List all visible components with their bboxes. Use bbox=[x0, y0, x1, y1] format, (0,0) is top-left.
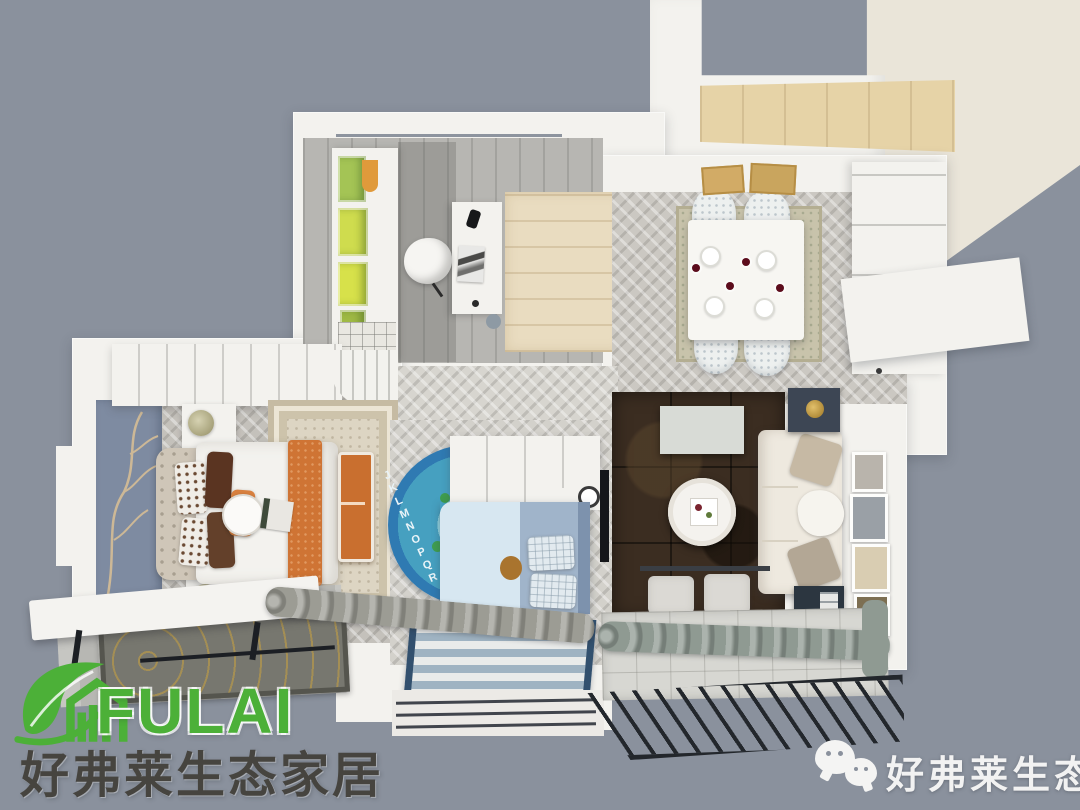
wine-glass bbox=[726, 282, 734, 290]
wechat-bubble-small bbox=[845, 758, 877, 786]
living-balcony-curtain-side bbox=[862, 600, 888, 678]
kids-headboard bbox=[578, 502, 590, 614]
wall-frame bbox=[852, 452, 886, 492]
bed-tray bbox=[222, 494, 264, 536]
study-window-mullion bbox=[336, 134, 562, 137]
desk-trinket bbox=[472, 300, 479, 307]
plaid-pillow bbox=[529, 573, 577, 609]
patterned-pillow bbox=[174, 461, 208, 515]
apartment-render: JKLMNOPQR bbox=[0, 0, 1080, 810]
plaid-pillow bbox=[527, 535, 575, 571]
tv-console bbox=[660, 406, 744, 454]
wine-glass bbox=[776, 284, 784, 292]
wine-glass bbox=[692, 264, 700, 272]
left-window-sill bbox=[56, 446, 74, 566]
tray-item bbox=[695, 504, 702, 511]
side-table-top bbox=[788, 388, 840, 432]
plate bbox=[704, 296, 725, 317]
wardrobe-glass-panel bbox=[338, 262, 368, 306]
teddy-bear bbox=[500, 556, 522, 580]
watermark-text: 好弗莱生态家居 bbox=[886, 744, 1080, 799]
desk-artwork bbox=[457, 245, 485, 282]
tray-item bbox=[706, 512, 712, 518]
cutting-board bbox=[701, 165, 745, 196]
branch-decal bbox=[96, 400, 162, 612]
plate bbox=[756, 250, 777, 271]
plate bbox=[700, 246, 721, 267]
dining-table bbox=[688, 220, 804, 340]
wardrobe-glass-panel bbox=[338, 208, 368, 256]
wall-tv bbox=[600, 470, 609, 562]
gold-decor bbox=[806, 400, 824, 418]
sofa-seat-divider bbox=[762, 486, 798, 488]
coffee-table-tray bbox=[690, 498, 718, 526]
wine-glass bbox=[742, 258, 750, 266]
ottoman bbox=[648, 576, 694, 614]
cutting-board bbox=[749, 163, 797, 195]
orange-bed-runner bbox=[288, 440, 322, 586]
desk-plant bbox=[486, 314, 501, 329]
curtain-track bbox=[640, 566, 770, 571]
cabinet-handle bbox=[876, 368, 882, 374]
sofa-seat-divider bbox=[762, 540, 798, 542]
bench-cushion-split bbox=[341, 502, 365, 505]
ottoman bbox=[704, 574, 750, 614]
bed-books bbox=[260, 498, 294, 532]
wall-frame bbox=[850, 494, 888, 542]
wood-room-floor bbox=[505, 192, 623, 352]
wall-frame bbox=[852, 544, 890, 592]
wechat-icon bbox=[815, 738, 881, 796]
kitchen-wood-floor bbox=[700, 80, 955, 152]
master-wardrobe-top bbox=[112, 344, 342, 406]
kids-bed bbox=[440, 502, 590, 614]
orange-towel bbox=[362, 160, 378, 192]
foot-bench bbox=[338, 452, 374, 562]
master-accent-wall bbox=[96, 400, 162, 612]
sofa bbox=[758, 430, 842, 594]
plate bbox=[754, 298, 775, 319]
logo-tagline: 好弗莱生态家居 bbox=[20, 736, 384, 807]
table-lamp bbox=[188, 410, 214, 436]
